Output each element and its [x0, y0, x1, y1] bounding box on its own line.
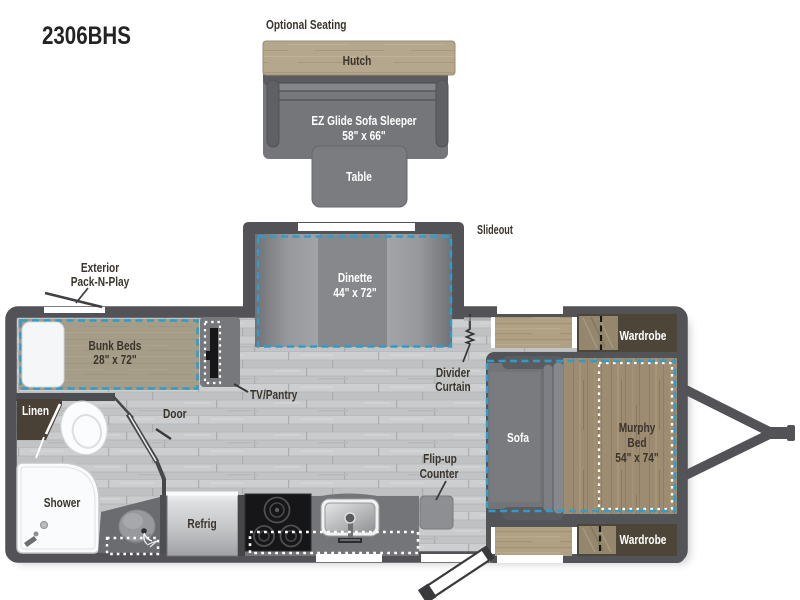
- svg-text:Hutch: Hutch: [343, 54, 372, 68]
- svg-text:Slideout: Slideout: [477, 224, 513, 238]
- svg-text:Murphy: Murphy: [619, 421, 656, 435]
- svg-text:Dinette: Dinette: [338, 271, 373, 285]
- svg-text:Wardrobe: Wardrobe: [620, 533, 667, 547]
- svg-text:Flip-up: Flip-up: [423, 452, 457, 466]
- svg-text:Curtain: Curtain: [435, 380, 470, 394]
- svg-text:Sofa: Sofa: [507, 431, 529, 445]
- svg-text:54" x 74": 54" x 74": [615, 451, 658, 465]
- svg-text:Counter: Counter: [420, 467, 459, 481]
- svg-text:Shower: Shower: [44, 496, 81, 510]
- svg-text:TV/Pantry: TV/Pantry: [250, 388, 298, 402]
- svg-text:Pack-N-Play: Pack-N-Play: [71, 275, 130, 289]
- svg-text:EZ Glide Sofa Sleeper: EZ Glide Sofa Sleeper: [311, 114, 417, 128]
- svg-text:Divider: Divider: [436, 366, 471, 380]
- svg-text:Table: Table: [346, 170, 372, 184]
- svg-text:Bunk Beds: Bunk Beds: [89, 339, 142, 353]
- svg-text:Refrig: Refrig: [187, 517, 216, 531]
- svg-text:Linen: Linen: [22, 404, 49, 418]
- svg-text:Wardrobe: Wardrobe: [620, 329, 667, 343]
- svg-text:Bed: Bed: [627, 436, 646, 450]
- svg-text:58" x 66": 58" x 66": [342, 129, 385, 143]
- svg-text:Exterior: Exterior: [81, 261, 120, 275]
- svg-text:Door: Door: [163, 407, 187, 421]
- svg-text:44" x 72": 44" x 72": [333, 286, 376, 300]
- svg-text:Optional Seating: Optional Seating: [266, 18, 346, 32]
- svg-text:28" x 72": 28" x 72": [93, 353, 136, 367]
- svg-text:2306BHS: 2306BHS: [42, 21, 131, 49]
